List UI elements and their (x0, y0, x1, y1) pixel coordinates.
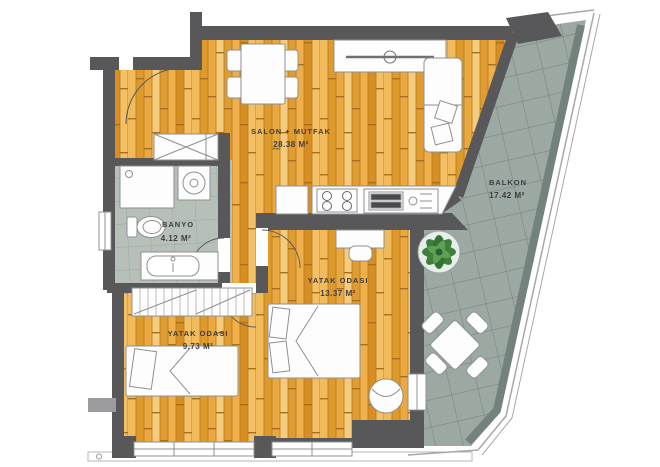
room-area: 4.12 M² (161, 234, 192, 243)
room-area: 28.38 M² (273, 140, 309, 149)
window-bedroom-small (134, 442, 254, 456)
window-bathroom (99, 212, 111, 250)
washing-machine (178, 166, 210, 200)
double-bed (268, 304, 360, 378)
fridge-cabinet (276, 186, 308, 214)
room-area: 9.73 M² (183, 342, 214, 351)
stove (317, 189, 357, 212)
room-name: BALKON (489, 178, 527, 187)
wardrobe (132, 288, 252, 316)
dining-chair (227, 50, 242, 71)
sofa (424, 58, 462, 152)
window-bedroom-large (272, 442, 352, 456)
room-name: YATAK ODASI (308, 276, 369, 285)
room-area: 13.37 M² (320, 289, 356, 298)
room-name: BANYO (162, 220, 194, 229)
shower (120, 166, 174, 208)
sink (364, 189, 438, 213)
room-area: 17.42 M² (489, 191, 525, 200)
plant (418, 231, 460, 273)
single-bed (126, 346, 238, 396)
dining-table (241, 44, 285, 104)
round-chair (369, 379, 403, 413)
toilet (127, 217, 165, 238)
room-name: YATAK ODASI (168, 329, 229, 338)
room-name: SALON + MUTFAK (251, 127, 331, 136)
vanity-sink (141, 252, 218, 280)
hall-closet (154, 134, 218, 160)
desk-chair (349, 246, 372, 261)
balcony-door (408, 374, 426, 410)
floor-plan: SALON + MUTFAK 28.38 M² BALKON 17.42 M² … (0, 0, 660, 467)
kitchen (276, 186, 456, 214)
dining-chair (227, 77, 242, 98)
